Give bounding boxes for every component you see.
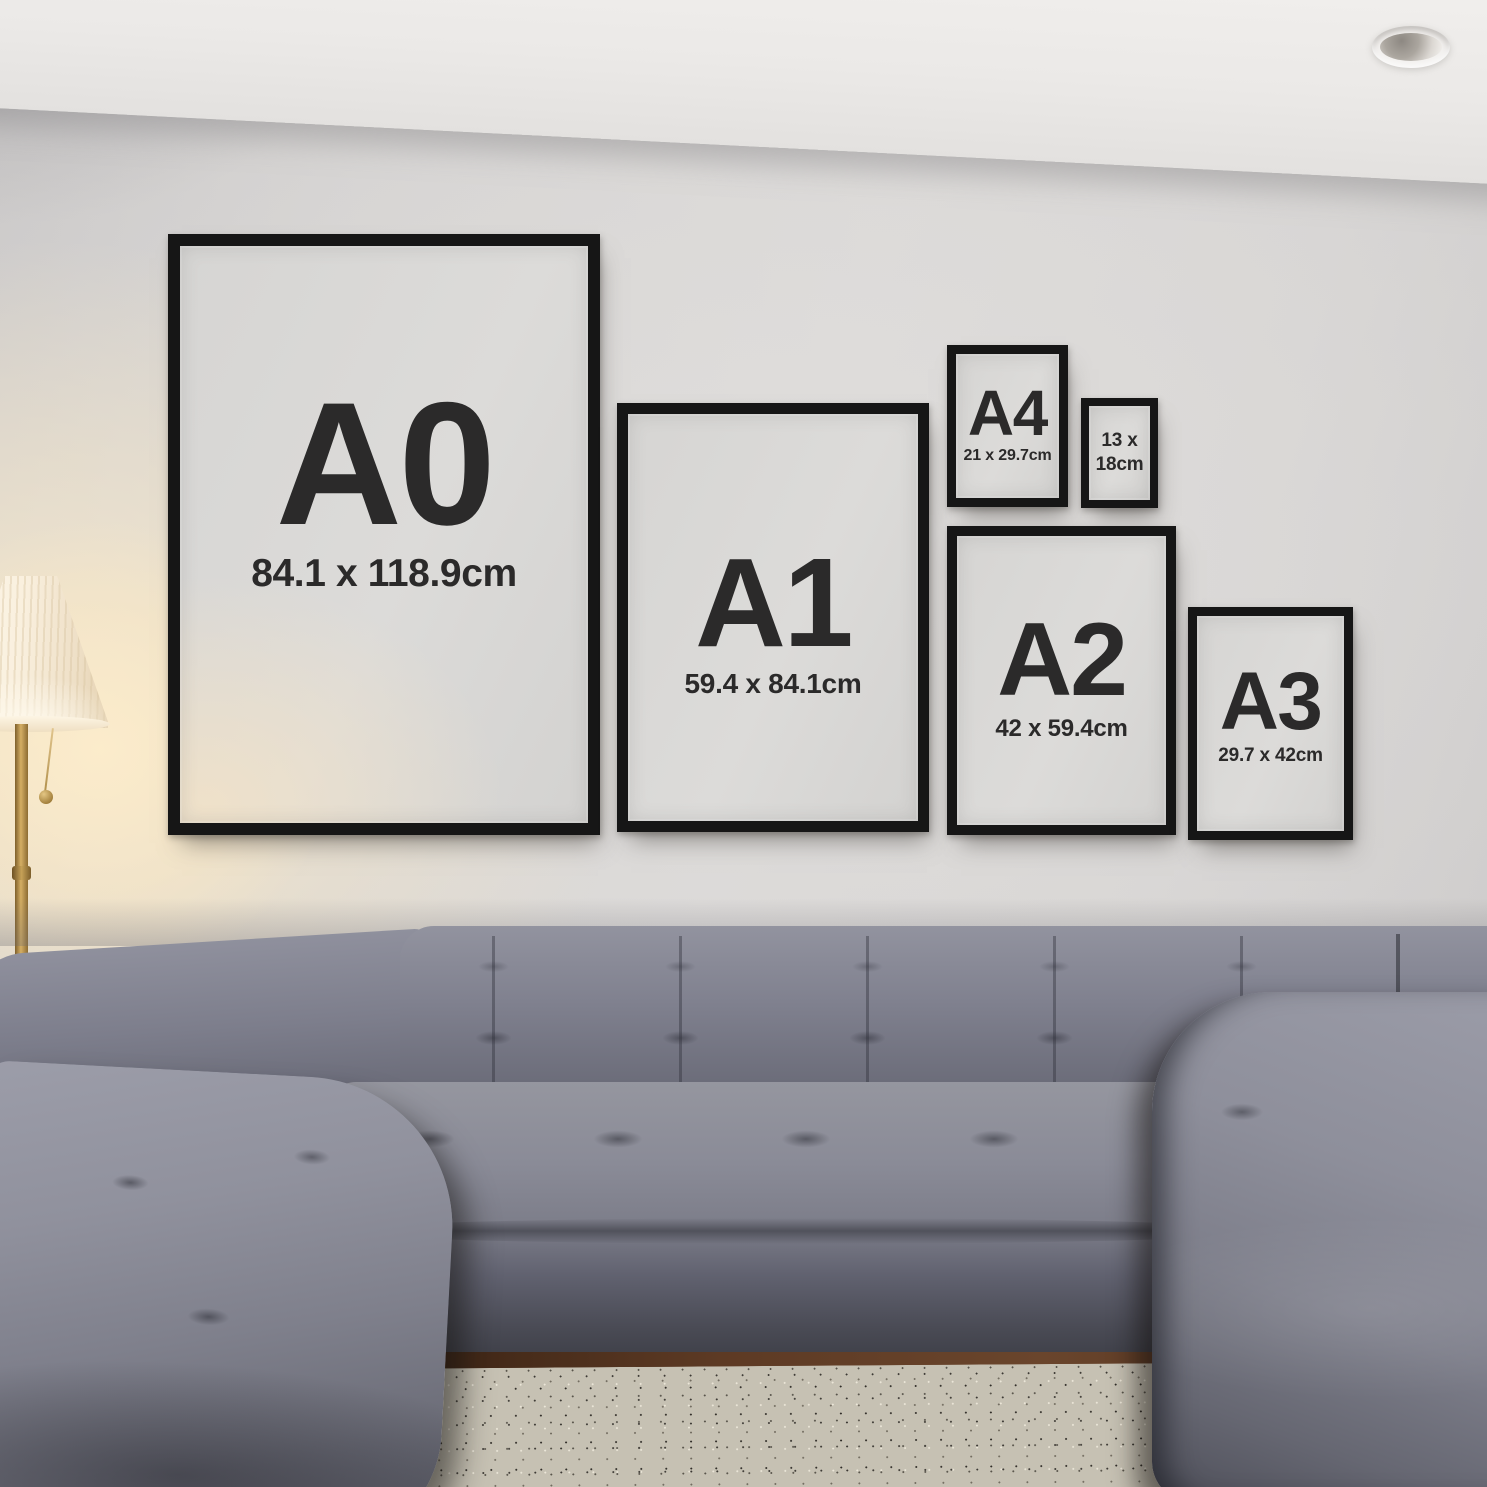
sectional-sofa: [0, 0, 1487, 1487]
sofa-seat-crease: [336, 1218, 1266, 1244]
sofa-chaise-left: [0, 1060, 460, 1487]
sofa-chaise-right: [1152, 992, 1487, 1487]
living-room-scene: A0 84.1 x 118.9cm A1 59.4 x 84.1cm A4 21…: [0, 0, 1487, 1487]
